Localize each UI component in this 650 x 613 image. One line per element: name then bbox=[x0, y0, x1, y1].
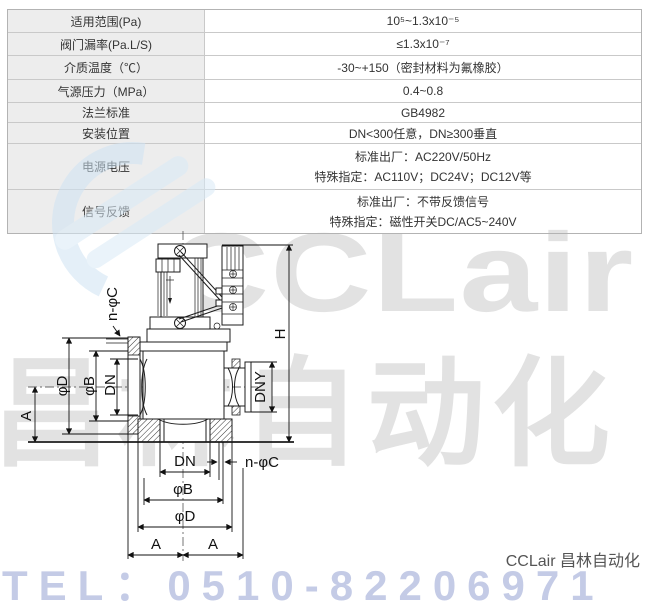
spec-label: 气源压力（MPa） bbox=[8, 80, 205, 102]
solenoid-valve bbox=[216, 246, 243, 325]
table-row: 安装位置 DN<300任意，DN≥300垂直 bbox=[8, 123, 641, 144]
spec-label: 电源电压 bbox=[8, 144, 205, 189]
spec-value: 标准出厂：不带反馈信号 特殊指定：磁性开关DC/AC5~240V bbox=[205, 190, 641, 233]
spec-table: 适用范围(Pa) 10⁵~1.3x10⁻⁵ 阀门漏率(Pa.L/S) ≤1.3x… bbox=[7, 9, 642, 234]
dim-label-a-bottom-left: A bbox=[151, 536, 161, 553]
dim-label-n-phi-c-left: n-φC bbox=[104, 287, 121, 321]
spec-value: ≤1.3x10⁻⁷ bbox=[205, 33, 641, 55]
dim-label-dn-bottom: DN bbox=[174, 453, 196, 470]
spec-value: 10⁵~1.3x10⁻⁵ bbox=[205, 10, 641, 32]
dim-label-dny: DNY bbox=[252, 371, 269, 403]
table-row: 信号反馈 标准出厂：不带反馈信号 特殊指定：磁性开关DC/AC5~240V bbox=[8, 190, 641, 233]
dim-label-n-phi-c-bottom: n-φC bbox=[245, 454, 279, 471]
spec-value: DN<300任意，DN≥300垂直 bbox=[205, 123, 641, 143]
table-row: 适用范围(Pa) 10⁵~1.3x10⁻⁵ bbox=[8, 10, 641, 33]
dim-label-h: H bbox=[272, 329, 289, 340]
dim-label-phi-d-left: φD bbox=[54, 376, 71, 397]
spec-label: 介质温度（℃） bbox=[8, 56, 205, 79]
spec-label: 适用范围(Pa) bbox=[8, 10, 205, 32]
spec-label: 安装位置 bbox=[8, 123, 205, 143]
dim-label-phi-b-left: φB bbox=[81, 376, 98, 396]
spec-value-line: 标准出厂：不带反馈信号 bbox=[357, 193, 489, 210]
spec-value-line: 标准出厂：AC220V/50Hz bbox=[355, 148, 491, 165]
spec-value: 标准出厂：AC220V/50Hz 特殊指定：AC110V；DC24V；DC12V… bbox=[205, 144, 641, 189]
table-row: 电源电压 标准出厂：AC220V/50Hz 特殊指定：AC110V；DC24V；… bbox=[8, 144, 641, 190]
spec-value: GB4982 bbox=[205, 103, 641, 122]
table-row: 气源压力（MPa） 0.4~0.8 bbox=[8, 80, 641, 103]
spec-value: -30~+150（密封材料为氟橡胶） bbox=[205, 56, 641, 79]
table-row: 法兰标准 GB4982 bbox=[8, 103, 641, 123]
dim-label-phi-d-bottom: φD bbox=[175, 508, 196, 525]
spec-label: 法兰标准 bbox=[8, 103, 205, 122]
table-row: 阀门漏率(Pa.L/S) ≤1.3x10⁻⁷ bbox=[8, 33, 641, 56]
spec-label: 阀门漏率(Pa.L/S) bbox=[8, 33, 205, 55]
footer-brand: CCLair 昌林自动化 bbox=[506, 547, 640, 571]
spec-value: 0.4~0.8 bbox=[205, 80, 641, 102]
table-row: 介质温度（℃） -30~+150（密封材料为氟橡胶） bbox=[8, 56, 641, 80]
datasheet-page: { "table": { "rows": [ {"label": "适用范围(P… bbox=[0, 0, 650, 575]
valve-body bbox=[106, 323, 251, 442]
pneumatic-actuator bbox=[150, 244, 232, 329]
spec-label: 信号反馈 bbox=[8, 190, 205, 233]
dim-label-a-bottom-right: A bbox=[208, 536, 218, 553]
dim-label-a-left: A bbox=[18, 411, 35, 421]
dim-label-dn-left: DN bbox=[102, 374, 119, 396]
valve-technical-drawing: H φD φB DN A n-φC DNY DN bbox=[10, 228, 310, 562]
spec-value-line: 特殊指定：AC110V；DC24V；DC12V等 bbox=[314, 168, 531, 185]
dim-label-phi-b-bottom: φB bbox=[173, 481, 193, 498]
spec-value-line: 特殊指定：磁性开关DC/AC5~240V bbox=[329, 213, 516, 230]
